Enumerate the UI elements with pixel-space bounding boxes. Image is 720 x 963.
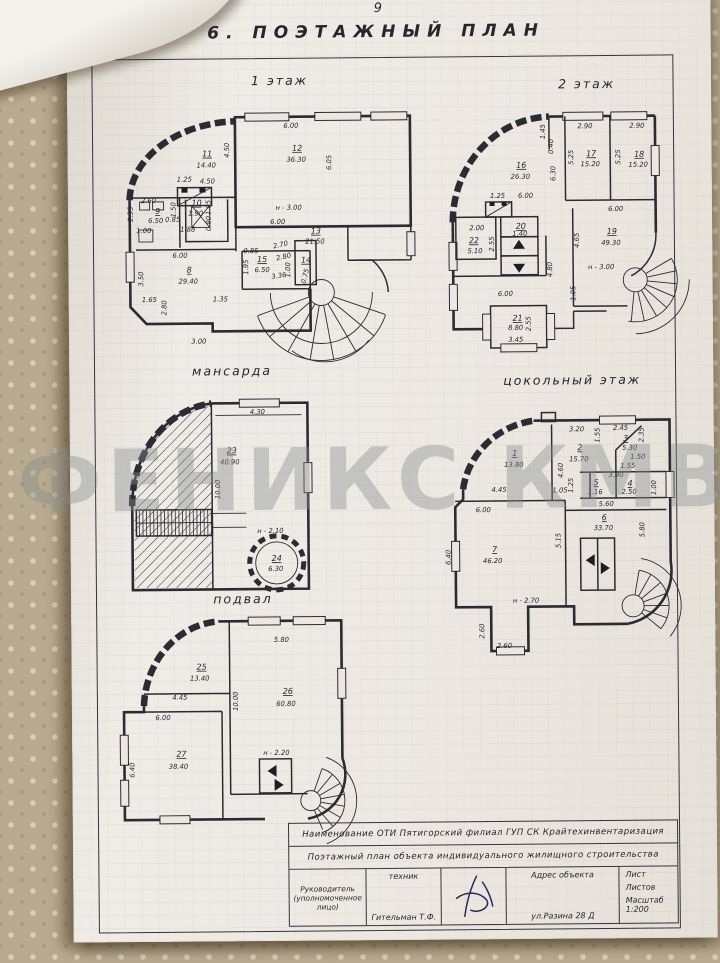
- sheets-label: Листов: [626, 883, 656, 892]
- document-title: 6. ПОЭТАЖНЫЙ ПЛАН: [136, 20, 616, 44]
- page-number: 9: [348, 1, 408, 17]
- title-block-doc-type: Поэтажный план объекта индивидуального ж…: [288, 842, 678, 868]
- floor-label-ground: цокольный этаж: [487, 372, 657, 388]
- title-block: Наименование ОТИ Пятигорский филиал ГУП …: [288, 819, 679, 926]
- technician-title: техник: [389, 872, 419, 881]
- floor-label-first: 1 этаж: [234, 72, 324, 88]
- floor-label-second: 2 этаж: [541, 76, 631, 92]
- sheet-label: Лист: [625, 870, 645, 879]
- floor-label-attic: мансарда: [177, 363, 287, 379]
- address-label: Адрес объекта: [531, 870, 594, 880]
- photo-of-floor-plan-document: { "page":{"number":"9","title":"6. ПОЭТА…: [0, 0, 720, 960]
- technician-name: Гительман Т.Ф.: [371, 913, 436, 923]
- title-block-role: Руководитель (уполномоченное лицо): [289, 869, 366, 926]
- floor-label-cellar: подвал: [198, 591, 288, 607]
- signature: [446, 872, 500, 920]
- title-block-org: Наименование ОТИ Пятигорский филиал ГУП …: [288, 819, 678, 845]
- scale-label: Масштаб 1:200: [626, 895, 676, 913]
- document-content: 9 6. ПОЭТАЖНЫЙ ПЛАН 1 этаж 2 этаж мансар…: [0, 0, 720, 963]
- drawing-frame: [91, 54, 681, 933]
- address-value: ул.Разина 28 Д: [531, 911, 594, 921]
